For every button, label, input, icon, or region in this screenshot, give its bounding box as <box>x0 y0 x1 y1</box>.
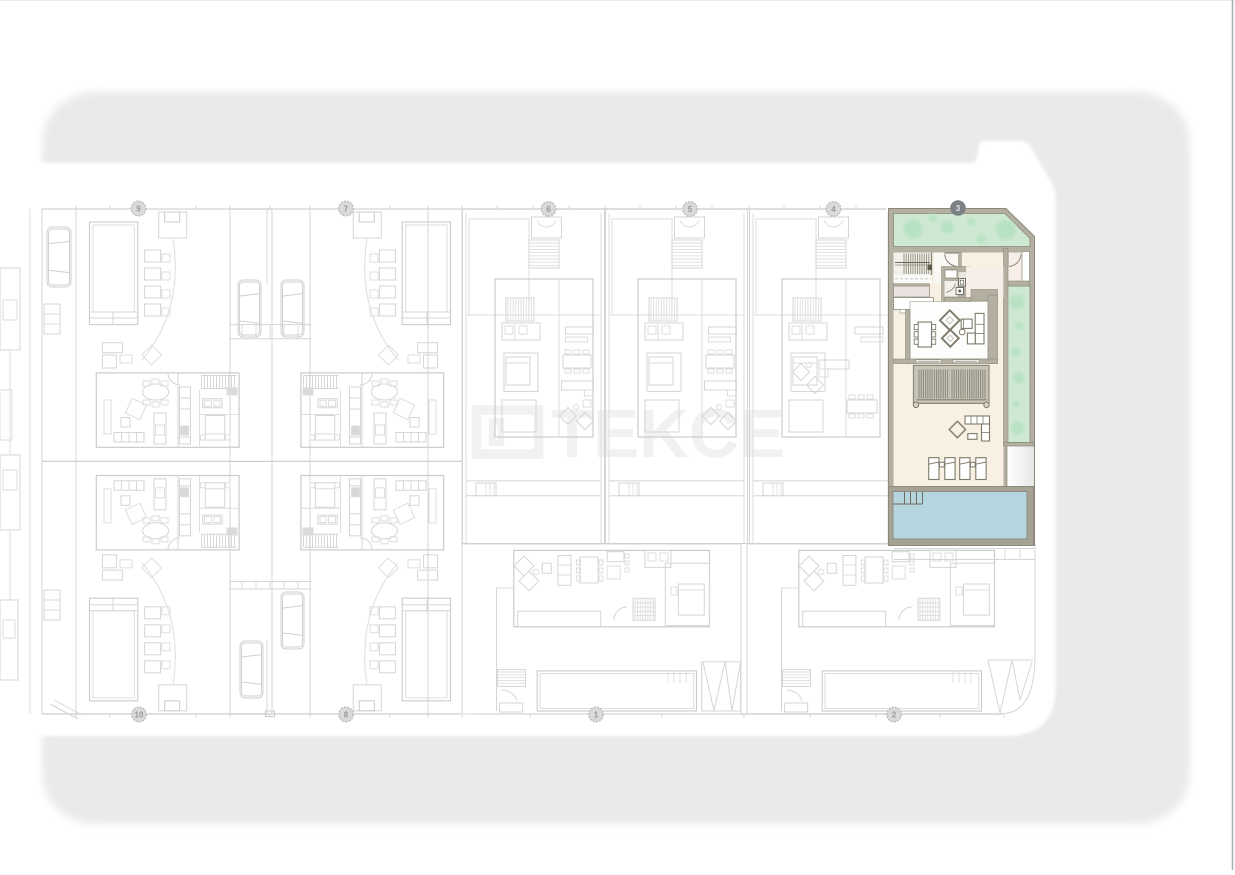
svg-text:10: 10 <box>135 711 144 720</box>
svg-text:1: 1 <box>594 711 599 720</box>
svg-text:9: 9 <box>136 205 141 214</box>
svg-text:3: 3 <box>956 204 961 213</box>
svg-text:5: 5 <box>688 205 693 214</box>
svg-text:8: 8 <box>344 711 349 720</box>
svg-text:2: 2 <box>892 711 897 720</box>
svg-text:6: 6 <box>546 205 551 214</box>
svg-text:7: 7 <box>344 205 349 214</box>
svg-text:4: 4 <box>831 205 836 214</box>
